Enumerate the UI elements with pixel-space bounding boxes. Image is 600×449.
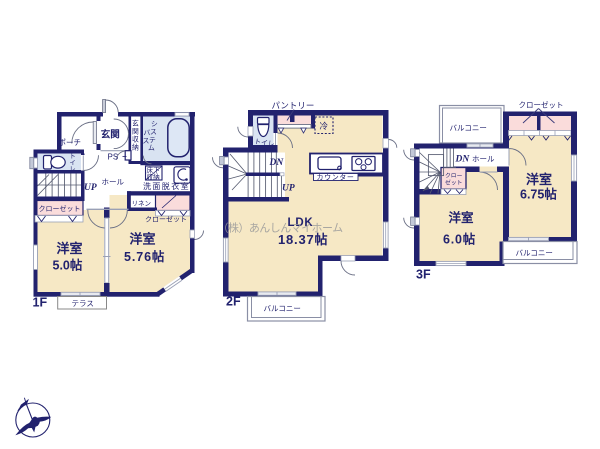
svg-text:DN: DN — [455, 155, 471, 165]
svg-text:6.0帖: 6.0帖 — [443, 232, 476, 247]
svg-text:洋室: 洋室 — [449, 210, 475, 225]
svg-text:洋室: 洋室 — [57, 241, 83, 256]
svg-text:クローゼット: クローゼット — [145, 215, 187, 224]
svg-text:リネン: リネン — [132, 200, 152, 208]
svg-text:DN: DN — [269, 158, 285, 168]
svg-text:レ: レ — [70, 166, 76, 173]
svg-text:5.0帖: 5.0帖 — [53, 258, 83, 273]
svg-text:玄: 玄 — [132, 119, 139, 128]
svg-text:洗面脱衣室: 洗面脱衣室 — [143, 181, 190, 191]
svg-text:関: 関 — [132, 128, 139, 136]
svg-text:バルコニー: バルコニー — [264, 304, 301, 313]
svg-text:2F: 2F — [226, 295, 241, 309]
svg-text:PS: PS — [108, 153, 119, 162]
svg-text:シ: シ — [151, 121, 158, 128]
svg-text:玄関: 玄関 — [101, 129, 120, 141]
svg-text:ム: ム — [148, 144, 155, 152]
svg-text:洋室: 洋室 — [526, 172, 552, 187]
svg-text:ホール: ホール — [472, 155, 495, 164]
svg-text:ホール: ホール — [102, 178, 125, 187]
svg-text:5.76帖: 5.76帖 — [124, 249, 165, 264]
svg-text:3F: 3F — [416, 268, 431, 282]
svg-text:UP: UP — [84, 183, 97, 193]
svg-text:6.75帖: 6.75帖 — [520, 187, 557, 202]
svg-text:バルコニー: バルコニー — [516, 249, 553, 258]
svg-text:収: 収 — [132, 136, 139, 144]
svg-text:クローゼット: クローゼット — [519, 100, 564, 110]
svg-text:収納: 収納 — [147, 172, 161, 181]
svg-text:カウンター: カウンター — [317, 173, 355, 182]
svg-text:テラス: テラス — [72, 299, 94, 308]
svg-text:ゼット: ゼット — [445, 179, 462, 187]
svg-text:納: 納 — [132, 143, 139, 152]
svg-text:冷: 冷 — [320, 121, 329, 131]
svg-text:1F: 1F — [33, 296, 48, 310]
svg-text:テ: テ — [149, 136, 156, 144]
svg-text:バ: バ — [144, 129, 151, 137]
svg-text:UP: UP — [282, 184, 295, 194]
svg-text:ス: ス — [150, 128, 157, 136]
svg-text:床下: 床下 — [147, 166, 161, 175]
svg-text:クロー: クロー — [445, 173, 463, 180]
svg-text:バルコニー: バルコニー — [450, 124, 487, 133]
svg-text:ポーチ: ポーチ — [59, 138, 82, 147]
svg-text:パントリー: パントリー — [272, 101, 315, 111]
svg-text:（株）あんしんマイホーム: （株）あんしんマイホーム — [218, 221, 344, 235]
svg-text:ス: ス — [143, 137, 150, 145]
svg-text:クローゼット: クローゼット — [39, 204, 81, 213]
svg-text:洋室: 洋室 — [130, 232, 156, 247]
